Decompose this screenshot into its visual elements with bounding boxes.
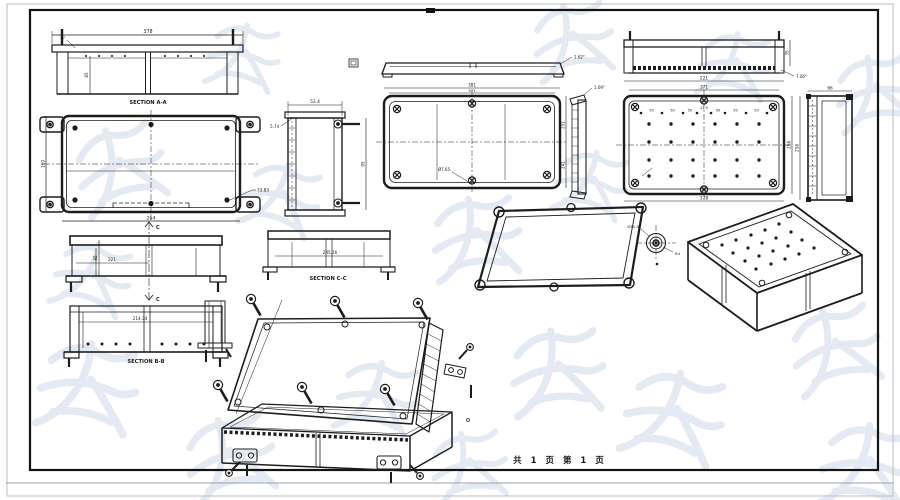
view-gasket-iso: [475, 203, 646, 291]
dim-spacing: 50: [754, 108, 759, 112]
dim-lip: 5.74: [270, 124, 279, 129]
dim-inner: 85: [93, 255, 98, 261]
dim-width: 53.4: [310, 99, 320, 105]
bracket-side-view: [198, 301, 232, 362]
dim-spacing: 50: [733, 108, 738, 112]
drawing-sheet: 378 17 85 SECTION A-A 73.83 264 160: [0, 0, 900, 500]
view-base-top: 73.83 264 160: [40, 110, 269, 221]
dim-hole: Ø7.65: [438, 167, 451, 172]
dim-spacing: 50: [649, 108, 654, 112]
dim-spacing: 50: [716, 108, 721, 112]
dim-inner-height: 241: [561, 161, 566, 169]
dim-height: 35: [785, 50, 790, 56]
dim-radius: R4: [675, 251, 681, 256]
dim-height: 258: [787, 141, 792, 149]
sheet-border: [6, 4, 894, 496]
cover-screws: [213, 294, 427, 405]
dim-width: 214.34: [133, 316, 148, 321]
dim-inner-width: 371: [700, 85, 708, 90]
page-footer: 共 1 页 第 1 页: [513, 455, 607, 466]
vent-dots: [87, 343, 206, 346]
dim-offset: 73.83: [257, 188, 269, 193]
dim-width: 378: [143, 29, 152, 35]
dim-dia: Ø10.5: [628, 224, 640, 229]
spacing-dots: [640, 112, 769, 115]
view-base-iso: [688, 204, 862, 331]
dim-width: 66: [827, 85, 833, 90]
cad-drawing: 378 17 85 SECTION A-A 73.83 264 160: [0, 0, 900, 500]
dim-height: 160: [41, 160, 46, 168]
dim-inner-width: 371: [468, 88, 476, 93]
finish-symbol: [349, 59, 358, 67]
dim-spacing: 50: [670, 108, 675, 112]
view-label: SECTION A-A: [129, 100, 166, 106]
dim-flange: 17: [60, 35, 65, 40]
leader-line: [236, 300, 282, 414]
dim-angle: 1.09°: [594, 85, 605, 90]
dim-depth: 85: [84, 72, 89, 78]
view-label: SECTION C-C: [310, 276, 347, 282]
view-section-cc: 245.16 SECTION C-C: [263, 231, 395, 282]
dim-width: 381: [468, 82, 476, 87]
dim-angle: 1.62°: [574, 55, 585, 60]
dim-spacing: 50: [688, 108, 693, 112]
watermark-layer: [36, 0, 900, 500]
dim-width: 378: [700, 195, 709, 201]
dim-width: 221: [108, 257, 116, 262]
floor-holes: [720, 222, 815, 270]
dim-width: 221: [700, 76, 709, 82]
dim-width: 264: [147, 215, 156, 221]
view-screw-detail: Ø10.5 R4: [628, 224, 681, 265]
border-tick: [426, 8, 435, 13]
view-lid-top: 381 371 251 241 Ø7.65: [376, 82, 568, 194]
dim-height: 95: [361, 161, 366, 167]
cut-label-top: C: [156, 225, 160, 231]
view-section-aa: 378 17 85 SECTION A-A: [52, 29, 243, 106]
cut-label-bottom: C: [156, 297, 160, 303]
dim-width: 245.16: [323, 250, 338, 255]
dim-angle: 7.06°: [796, 74, 807, 79]
dim-height: 251: [561, 121, 566, 129]
dim-height: 258: [795, 144, 800, 152]
view-bottom: 50 50 50 50 50 50 21.5 371 378 258: [616, 85, 792, 202]
view-label: SECTION B-B: [127, 359, 164, 365]
